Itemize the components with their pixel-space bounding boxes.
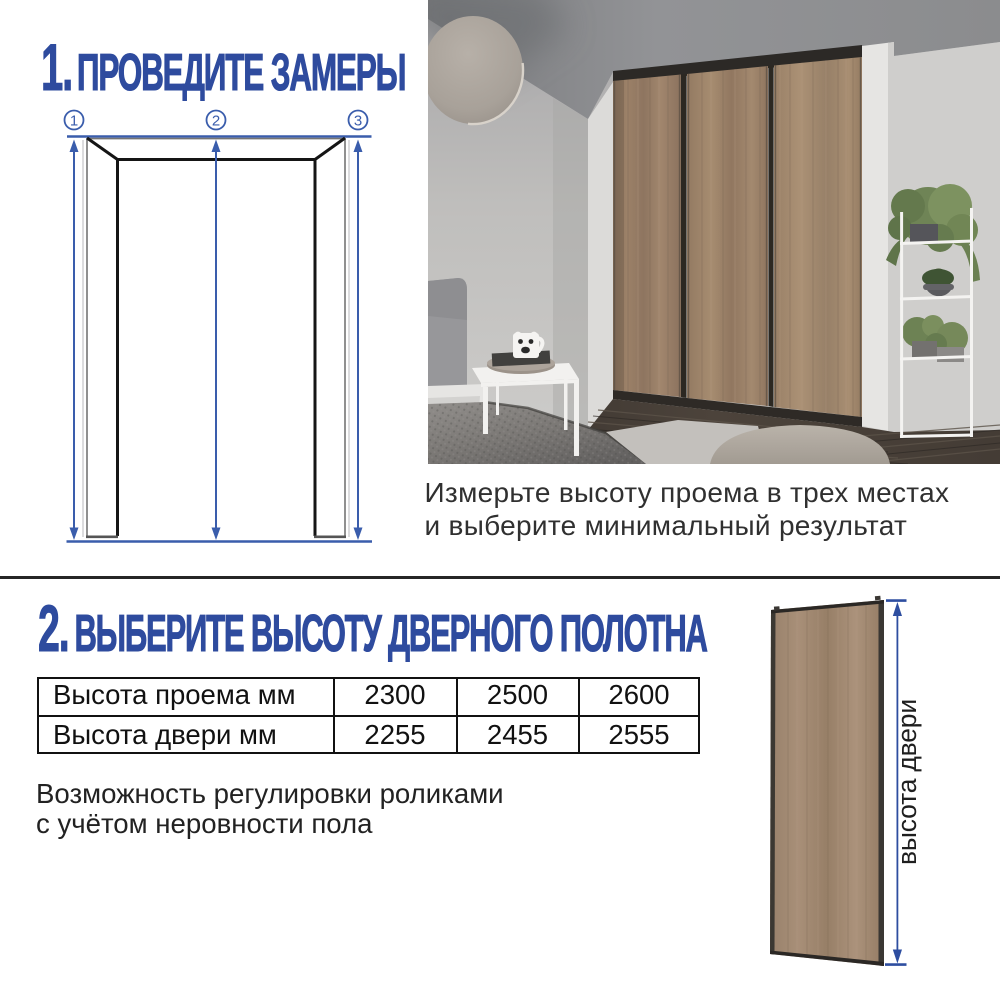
svg-text:высота двери: высота двери [892, 699, 922, 865]
svg-text:3: 3 [354, 113, 362, 130]
svg-text:2: 2 [212, 113, 220, 130]
svg-text:1: 1 [70, 113, 78, 130]
